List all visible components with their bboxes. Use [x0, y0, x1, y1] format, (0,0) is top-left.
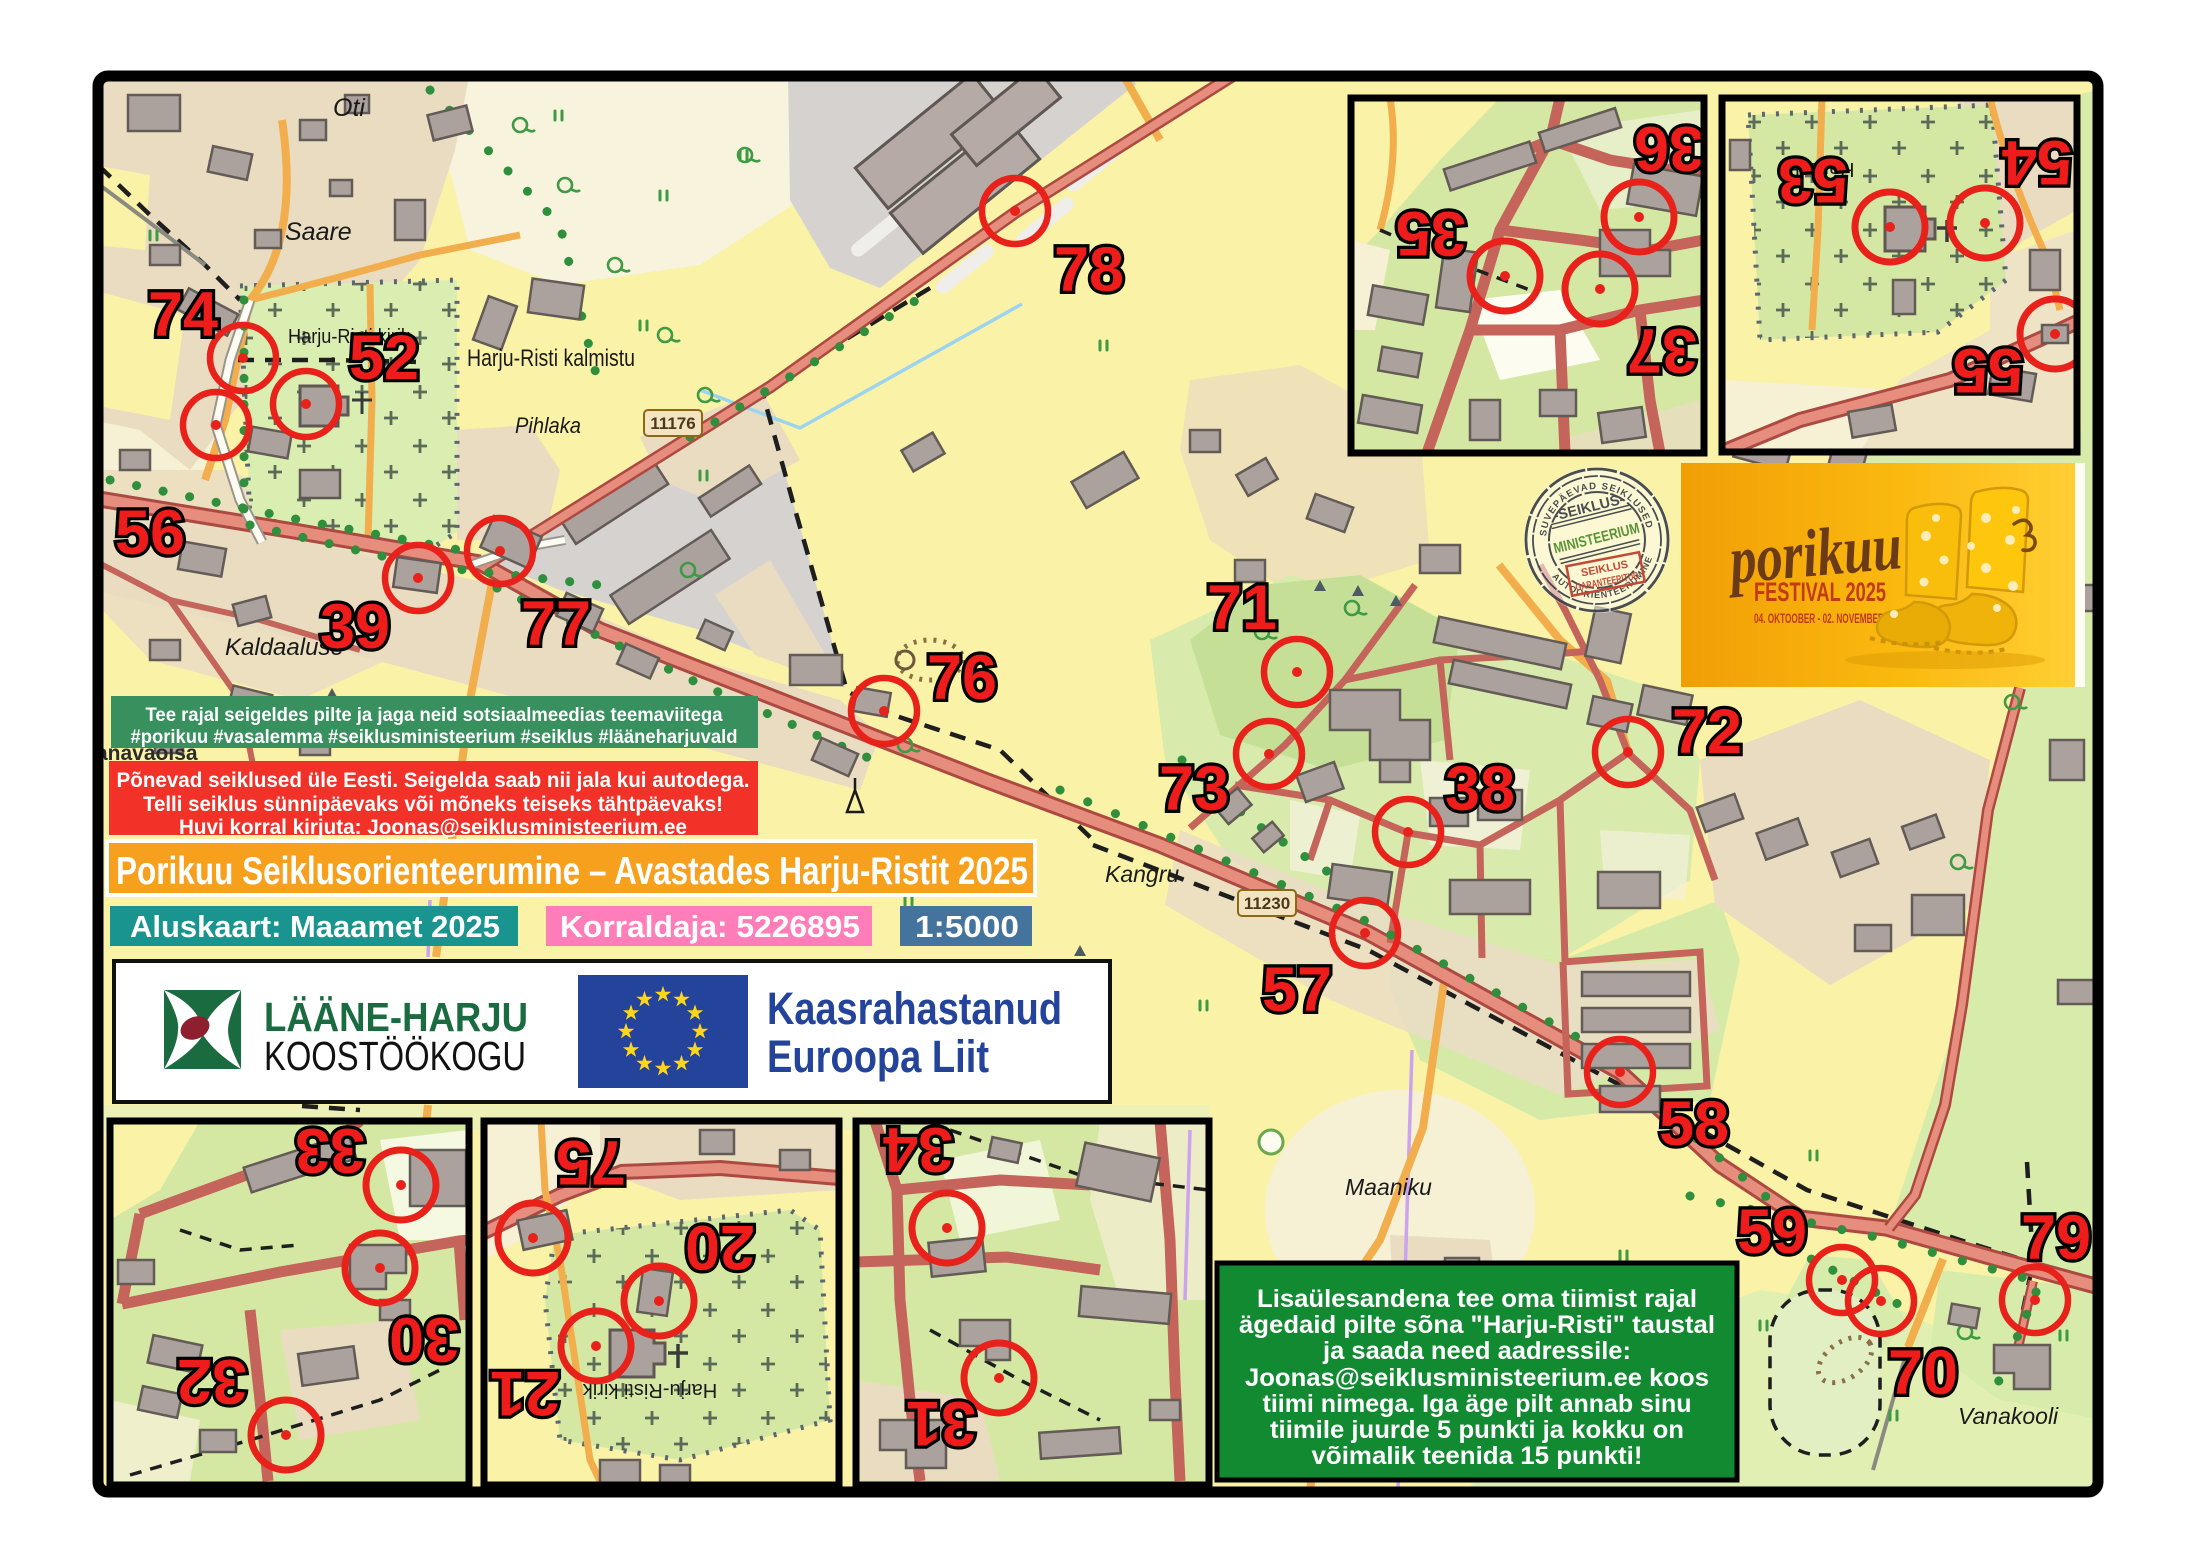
- svg-text:Aluskaart: Maaamet 2025: Aluskaart: Maaamet 2025: [130, 909, 500, 944]
- svg-text:Porikuu Seiklusorienteerumine: Porikuu Seiklusorienteerumine – Avastade…: [116, 850, 1028, 893]
- svg-text:Telli seiklus sünnipäevaks või: Telli seiklus sünnipäevaks või mõneks te…: [143, 793, 723, 816]
- svg-text:tiimile juurde 5 punkti ja kok: tiimile juurde 5 punkti ja kokku on: [1270, 1416, 1684, 1444]
- svg-text:Korraldaja: 5226895: Korraldaja: 5226895: [560, 909, 860, 944]
- svg-text:Joonas@seiklusministeerium.ee: Joonas@seiklusministeerium.ee koos: [1245, 1364, 1709, 1392]
- svg-text:Tee rajal seigeldes pilte ja j: Tee rajal seigeldes pilte ja jaga neid s…: [146, 705, 723, 726]
- svg-text:Põnevad seiklused üle Eesti. S: Põnevad seiklused üle Eesti. Seigelda sa…: [117, 769, 750, 792]
- svg-text:ja saada need aadressile:: ja saada need aadressile:: [1322, 1337, 1631, 1365]
- svg-text:võimalik teenida 15 punkti!: võimalik teenida 15 punkti!: [1312, 1442, 1643, 1470]
- svg-text:KOOSTÖÖKOGU: KOOSTÖÖKOGU: [264, 1033, 526, 1079]
- svg-text:1:5000: 1:5000: [915, 909, 1019, 944]
- svg-text:tiimi nimega. Iga äge pilt ann: tiimi nimega. Iga äge pilt annab sinu: [1263, 1390, 1692, 1418]
- svg-text:Lisaülesandena tee oma tiimist: Lisaülesandena tee oma tiimist rajal: [1257, 1285, 1697, 1313]
- svg-text:Kaasrahastanud: Kaasrahastanud: [767, 983, 1062, 1034]
- svg-text:Huvi korral kirjuta: Joonas@se: Huvi korral kirjuta: Joonas@seiklusminis…: [179, 816, 687, 839]
- svg-text:ägedaid pilte sõna "Harju-Rist: ägedaid pilte sõna "Harju-Risti" taustal: [1239, 1311, 1715, 1339]
- svg-text:Euroopa Liit: Euroopa Liit: [767, 1031, 989, 1082]
- svg-text:#porikuu #vasalemma #seiklusmi: #porikuu #vasalemma #seiklusministeerium…: [131, 727, 738, 748]
